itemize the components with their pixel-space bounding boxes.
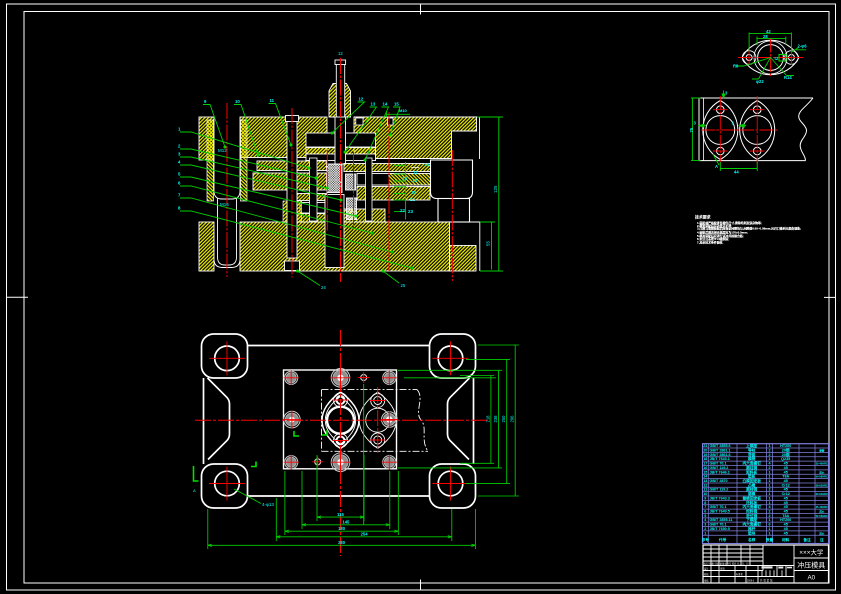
svg-text:17: 17: [413, 170, 419, 175]
svg-text:技术要求: 技术要求: [695, 214, 711, 219]
svg-text:导套: 导套: [748, 452, 756, 457]
svg-text:22: 22: [400, 208, 406, 213]
svg-text:代号: 代号: [718, 537, 727, 542]
svg-text:内六角螺钉: 内六角螺钉: [742, 522, 761, 527]
svg-text:M16: M16: [220, 202, 229, 207]
svg-text:13: 13: [371, 102, 376, 107]
svg-text:JB/T 7643.3: JB/T 7643.3: [710, 496, 730, 500]
svg-text:75: 75: [689, 127, 694, 132]
svg-text:12: 12: [338, 51, 343, 56]
svg-text:材料: 材料: [781, 537, 790, 542]
svg-text:共 张 第 张: 共 张 第 张: [760, 578, 773, 582]
svg-text:1: 1: [704, 531, 706, 535]
svg-text:60-64HRC: 60-64HRC: [816, 492, 828, 496]
svg-text:28: 28: [763, 34, 768, 39]
svg-text:R8: R8: [733, 64, 739, 69]
svg-text:圆柱销: 圆柱销: [746, 487, 757, 492]
svg-text:24: 24: [321, 285, 326, 290]
svg-text:内六角螺钉: 内六角螺钉: [742, 461, 761, 466]
svg-text:M12: M12: [218, 148, 227, 153]
svg-text:1: 1: [768, 531, 770, 535]
svg-text:25: 25: [401, 283, 406, 288]
svg-text:GB/T 119.2: GB/T 119.2: [710, 488, 729, 492]
svg-text:凸模固定板: 凸模固定板: [742, 478, 761, 483]
svg-text:16: 16: [424, 162, 430, 167]
svg-text:内六角螺钉: 内六角螺钉: [742, 504, 761, 509]
svg-text:数量: 数量: [765, 537, 774, 542]
svg-text:2-φ6: 2-φ6: [798, 44, 808, 49]
svg-text:挖料销: 挖料销: [746, 509, 757, 514]
svg-text:下模座: 下模座: [746, 517, 757, 522]
svg-text:淇火: 淇火: [818, 531, 825, 535]
svg-text:JB/T 7646.1: JB/T 7646.1: [710, 470, 730, 474]
svg-text:2008.6: 2008.6: [747, 581, 755, 583]
svg-text:凿模: 凿模: [748, 491, 756, 496]
svg-text:254: 254: [361, 532, 369, 537]
svg-text:44: 44: [734, 170, 739, 175]
svg-text:20钢: 20钢: [782, 452, 790, 457]
svg-text:54-58HRC: 54-58HRC: [816, 475, 828, 479]
svg-text:备注: 备注: [802, 537, 811, 542]
svg-text:58-62HRC: 58-62HRC: [816, 483, 828, 487]
svg-text:定位销: 定位销: [745, 513, 757, 518]
svg-text:模柄: 模柄: [748, 456, 756, 461]
svg-text:A0: A0: [808, 575, 816, 582]
svg-text:20钢: 20钢: [782, 447, 790, 452]
svg-text:R14: R14: [784, 75, 792, 80]
svg-text:14: 14: [383, 102, 388, 107]
svg-text:15: 15: [394, 102, 399, 107]
svg-text:23: 23: [408, 209, 414, 214]
svg-text:4-φ13: 4-φ13: [262, 502, 274, 507]
svg-text:10: 10: [235, 99, 240, 104]
svg-text:推杆: 推杆: [748, 526, 756, 531]
svg-text:注: 注: [820, 537, 824, 542]
svg-text:垫板: 垫板: [748, 474, 756, 479]
svg-text:125: 125: [493, 185, 498, 193]
svg-text:φ22: φ22: [756, 79, 764, 84]
svg-text:20: 20: [411, 190, 417, 195]
svg-text:凸模: 凸模: [748, 482, 756, 487]
svg-text:导柱: 导柱: [748, 447, 756, 452]
svg-text:55: 55: [486, 240, 491, 246]
svg-text:7.其余技术条件验收.: 7.其余技术条件验收.: [697, 239, 724, 244]
svg-text:280: 280: [338, 540, 346, 545]
svg-text:×××大学: ×××大学: [799, 548, 824, 557]
svg-text:托料板: 托料板: [746, 500, 757, 505]
svg-text:冲压模具: 冲压模具: [797, 561, 825, 570]
svg-text:JB/T 7649.5: JB/T 7649.5: [710, 510, 730, 514]
svg-text:M10: M10: [399, 108, 408, 113]
svg-text:凿模固定板: 凿模固定板: [742, 495, 761, 500]
svg-text:19: 19: [402, 176, 408, 181]
svg-text:卸料板: 卸料板: [746, 469, 757, 474]
svg-text:A: A: [715, 164, 718, 169]
svg-text:21: 21: [410, 197, 416, 202]
svg-text:250: 250: [501, 415, 506, 423]
svg-text:180: 180: [338, 526, 346, 531]
svg-text:145: 145: [342, 520, 350, 525]
svg-text:名称: 名称: [748, 537, 756, 542]
svg-text:11: 11: [270, 98, 275, 103]
svg-text:296: 296: [510, 415, 515, 423]
svg-text:淇火: 淇火: [818, 470, 825, 474]
svg-text:12: 12: [359, 97, 364, 102]
svg-text:A: A: [193, 488, 196, 493]
svg-text:JB/T 7650.5: JB/T 7650.5: [710, 527, 730, 531]
svg-text:218: 218: [485, 415, 490, 423]
svg-text:45: 45: [784, 531, 788, 535]
svg-text:GB/T 2870: GB/T 2870: [710, 479, 728, 483]
svg-text:上模座: 上模座: [746, 443, 757, 448]
svg-text:序号: 序号: [701, 537, 710, 542]
svg-text:淇火: 淇火: [818, 510, 825, 514]
svg-text:渗碳: 渗碳: [819, 448, 825, 452]
svg-text:垫块: 垫块: [748, 530, 756, 535]
svg-text:116: 116: [337, 512, 344, 517]
svg-text:圆柱销: 圆柱销: [746, 465, 757, 470]
svg-text:52-56HRC: 52-56HRC: [816, 514, 828, 518]
svg-text:18: 18: [412, 178, 418, 183]
svg-text:238: 238: [493, 415, 498, 423]
svg-text:35-40HRC: 35-40HRC: [816, 505, 828, 509]
svg-text:35-40HRC: 35-40HRC: [816, 462, 828, 466]
